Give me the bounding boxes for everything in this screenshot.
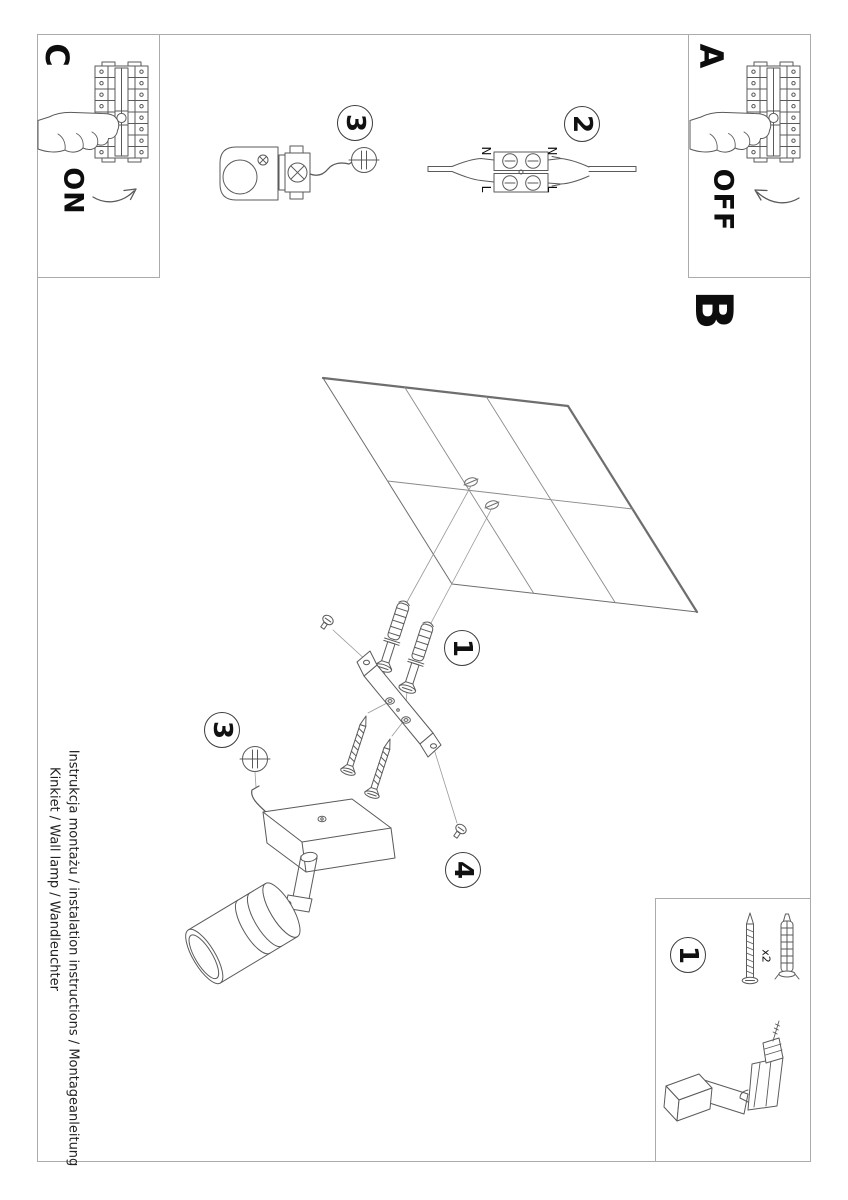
section-b-label: B — [687, 290, 739, 330]
terminal-block-wiring — [428, 152, 636, 192]
wall-panel — [323, 378, 697, 612]
lamp-wire — [252, 786, 266, 812]
caption-line-1: Instrukcja montażu / instalation instruc… — [67, 750, 80, 1167]
drill-icon — [664, 1021, 783, 1121]
side-screw — [318, 613, 335, 631]
step-badge-2: 2 — [564, 106, 600, 142]
screw-part — [742, 913, 758, 984]
curved-arrow-icon — [93, 189, 136, 202]
flat-screwdriver-icon — [240, 747, 270, 772]
curved-arrow-icon — [755, 190, 799, 203]
off-label: OFF — [710, 169, 737, 232]
lamp-head — [179, 878, 307, 989]
mounting-screw — [340, 714, 373, 777]
breaker-panel-a — [747, 62, 800, 162]
wall-plug-part — [775, 914, 799, 979]
wall-plug-with-screw — [398, 620, 437, 695]
caption-line-2: Kinkiet / Wall lamp / Wandleuchter — [48, 767, 61, 991]
flat-screwdriver-icon — [349, 148, 379, 173]
earth-wire — [310, 161, 354, 175]
step-badge-1: 1 — [670, 937, 706, 973]
section-c-label: C — [41, 43, 73, 66]
step-badge-1: 1 — [444, 630, 480, 666]
wire-n-label: N — [546, 147, 558, 156]
section-a-label: A — [695, 44, 727, 69]
mounting-screw — [364, 737, 397, 800]
wire-n-label: N — [480, 147, 492, 156]
wire-l-label: L — [546, 186, 558, 193]
wall-plug-with-screw — [374, 599, 413, 674]
breaker-panel-c — [95, 62, 148, 162]
instruction-sheet: C ON A OFF B N N L L x2 Instrukcja monta… — [0, 0, 848, 1200]
step-badge-3: 3 — [204, 712, 240, 748]
lamp-terminal-detail — [220, 146, 354, 200]
step-badge-3: 3 — [337, 105, 373, 141]
mounting-bracket — [357, 651, 441, 757]
side-screw — [451, 822, 468, 840]
wall-lamp — [179, 786, 395, 989]
on-label: ON — [60, 167, 87, 215]
quantity-label: x2 — [761, 949, 772, 963]
step-badge-4: 4 — [445, 852, 481, 888]
wire-l-label: L — [480, 186, 492, 193]
